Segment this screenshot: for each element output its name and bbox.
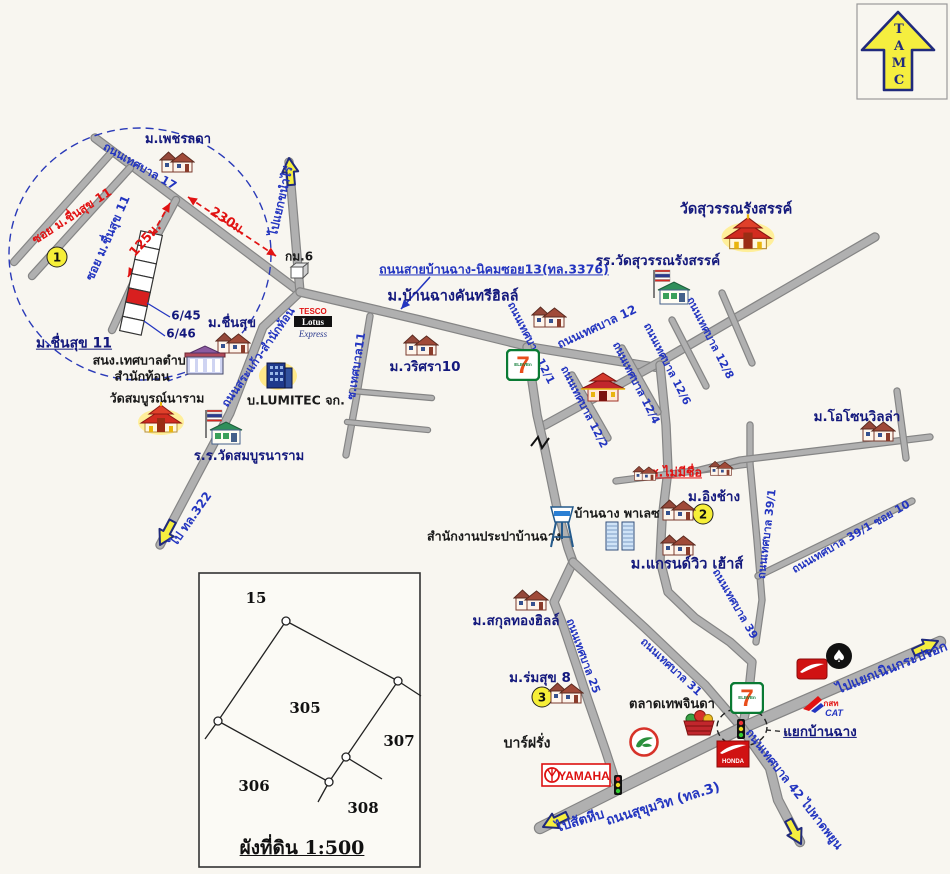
tamc-letter: M xyxy=(892,56,906,71)
fruit-market-icon xyxy=(681,710,717,742)
tamc-letter: T xyxy=(894,22,904,37)
honda-wing-logo xyxy=(796,658,828,684)
house-icon xyxy=(632,464,657,485)
tamc-logo: TAMC xyxy=(857,4,947,99)
black-emblem-logo: ♠ xyxy=(825,642,853,674)
survey-marker xyxy=(394,677,402,685)
map-label: บาร์ฝรั่ง xyxy=(504,737,551,752)
map-label: สำนักงานประปาบ้านฉาง xyxy=(427,529,561,542)
map-label: ถนนสายบ้านฉาง-นิคมซอย13(ทล.3376) xyxy=(379,262,609,275)
svg-text:Lotus: Lotus xyxy=(302,317,325,327)
map-label: ม.ชื่นสุข 11 xyxy=(36,337,112,352)
house-icon xyxy=(531,303,567,333)
tesco-lotus-logo: TESCO Lotus Express xyxy=(290,306,336,346)
house-icon xyxy=(660,531,696,561)
school-flag-icon xyxy=(202,408,246,452)
map-label: 6/45 xyxy=(171,310,200,323)
svg-text:YAMAHA: YAMAHA xyxy=(558,769,610,783)
map-label: รร.วัดสุวรรณรังสรรค์ xyxy=(596,254,720,268)
bird-logo xyxy=(628,726,660,762)
municipal-office-icon xyxy=(184,344,226,380)
traffic-light-icon xyxy=(736,718,746,744)
svg-text:TESCO: TESCO xyxy=(299,307,327,316)
map-label: บ้านฉาง พาเลซ xyxy=(574,506,659,519)
map-label: ม.บ้านฉางคันทรีฮิลล์ xyxy=(387,289,518,304)
arrowhead xyxy=(266,247,276,256)
km-marker-icon xyxy=(289,261,309,283)
svg-text:ELEVEn: ELEVEn xyxy=(514,362,532,367)
svg-text:♠: ♠ xyxy=(831,647,846,667)
seven-eleven-logo: 7 ELEVEn xyxy=(730,682,764,718)
house-icon xyxy=(548,679,584,709)
plot-number: 15 xyxy=(246,589,267,607)
school-flag-icon xyxy=(650,268,694,312)
plot-number: 307 xyxy=(383,732,414,750)
plot-pointer-line xyxy=(147,303,170,317)
honda-logo: HONDA xyxy=(716,740,750,772)
temple-icon xyxy=(137,402,185,440)
map-label: สนง.เทศบาลตำบล xyxy=(93,353,194,366)
map-label: ม.เพชรลดา xyxy=(145,133,211,147)
svg-text:กสท: กสท xyxy=(824,699,839,708)
map-label: ม.วริศรา10 xyxy=(389,360,460,374)
tamc-letter: C xyxy=(894,73,904,88)
map-label: 6/46 xyxy=(166,328,195,341)
house-icon xyxy=(860,417,896,447)
survey-marker xyxy=(342,753,350,761)
water-tower-icon xyxy=(548,505,576,553)
svg-text:Express: Express xyxy=(298,329,328,339)
cat-telecom-logo: กสท CAT xyxy=(801,694,847,724)
temple-icon xyxy=(720,214,775,258)
lumitec-building-icon xyxy=(258,358,298,396)
tamc-letter: A xyxy=(893,39,905,54)
ban-chang-map-page: TAMCม.เพชรลดาถนนเทศบาล 17ซอย ม.ชื่นสุข 1… xyxy=(0,0,950,874)
svg-text:ELEVEn: ELEVEn xyxy=(738,695,756,700)
house-icon xyxy=(403,331,439,361)
traffic-light-icon xyxy=(613,774,623,800)
plot-number: 306 xyxy=(238,777,269,795)
house-icon xyxy=(159,148,195,178)
map-label: ซ.ไม่มีชื่อ xyxy=(650,465,702,478)
map-label: ร.ร.วัดสมบูรนาราม xyxy=(194,450,304,464)
plot-number: 308 xyxy=(347,799,378,817)
survey-marker xyxy=(325,778,333,786)
circled-number: 1 xyxy=(47,247,68,268)
plot-number: 305 xyxy=(289,699,320,717)
map-label: สำนักท้อน xyxy=(114,369,169,382)
yamaha-logo: YAMAHA xyxy=(541,763,611,791)
house-icon xyxy=(513,586,549,616)
map-label: ม.สกุลทองฮิลล์ xyxy=(472,614,559,628)
land-diagram-frame xyxy=(199,573,420,867)
svg-text:HONDA: HONDA xyxy=(722,759,745,765)
survey-marker xyxy=(282,617,290,625)
plot-pointer-line xyxy=(144,321,165,336)
land-diagram-title: ผังที่ดิน 1:500 xyxy=(240,833,365,863)
house-icon xyxy=(660,496,696,526)
chinese-shrine-icon xyxy=(579,371,627,407)
map-label: แยกบ้านฉาง xyxy=(783,725,857,739)
svg-text:CAT: CAT xyxy=(825,708,844,718)
house-icon xyxy=(708,459,733,480)
survey-marker xyxy=(214,717,222,725)
seven-eleven-logo: 7 ELEVEn xyxy=(506,349,540,385)
apartment-icon xyxy=(604,519,636,557)
